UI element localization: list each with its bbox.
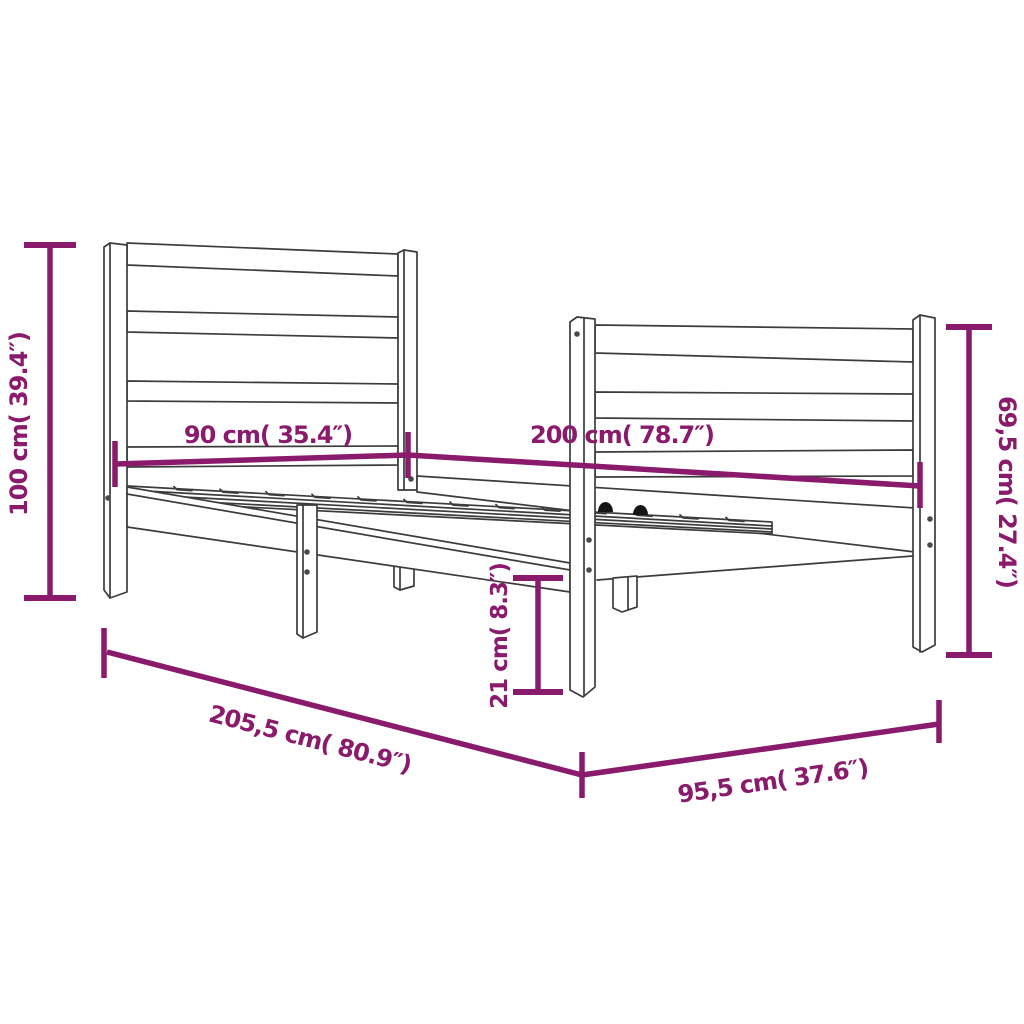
label-bed-length: 200 cm( 78.7″): [530, 421, 714, 449]
screw-icon: [586, 537, 592, 543]
product-dimension-diagram: 100 cm( 39.4″) 90 cm( 35.4″) 200 cm( 78.…: [0, 0, 1024, 1024]
headboard-left-post: [104, 243, 127, 598]
footboard-support-block: [613, 576, 637, 612]
label-total-height: 100 cm( 39.4″): [5, 332, 33, 516]
screw-icon: [105, 495, 111, 501]
screw-icon: [304, 569, 310, 575]
label-leg-height: 21 cm( 8.3″): [487, 563, 513, 709]
screw-icon: [574, 331, 580, 337]
footboard-board-3: [595, 450, 913, 477]
bed-frame-dimension-drawing: 100 cm( 39.4″) 90 cm( 35.4″) 200 cm( 78.…: [0, 0, 1024, 1024]
footboard-near-post: [570, 317, 595, 697]
screw-icon: [927, 542, 933, 548]
screw-icon: [304, 549, 310, 555]
screw-icon: [927, 516, 933, 522]
headboard-board-3: [127, 381, 398, 403]
footboard-board-2: [595, 392, 913, 421]
label-footboard-height: 69,5 cm( 27.4″): [993, 396, 1021, 588]
screw-icon: [586, 567, 592, 573]
label-headboard-width: 90 cm( 35.4″): [184, 421, 352, 449]
